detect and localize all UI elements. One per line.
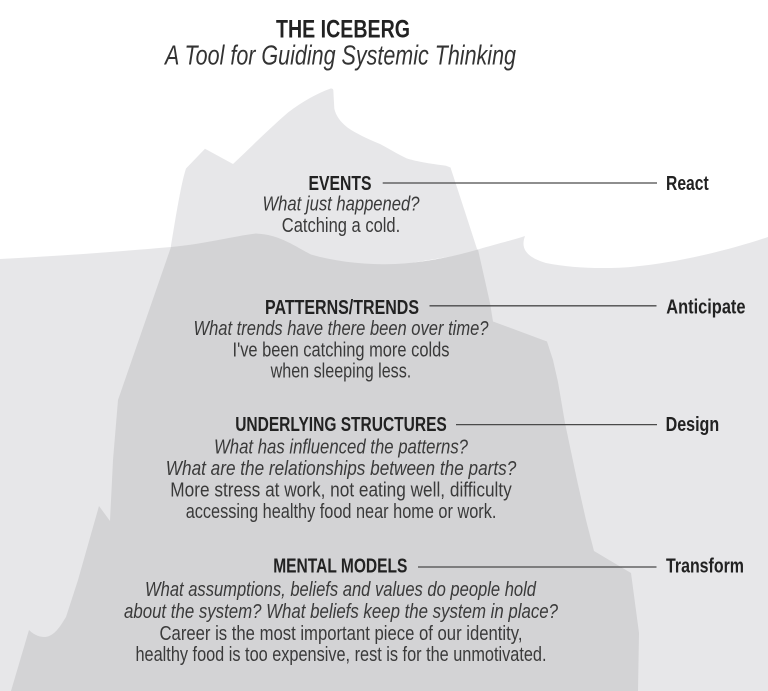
svg-text:Transform: Transform [666,556,744,578]
svg-text:Anticipate: Anticipate [666,296,745,318]
svg-text:EVENTS: EVENTS [309,173,372,195]
svg-text:I've been catching more colds: I've been catching more colds [233,340,450,362]
svg-text:accessing healthy food near ho: accessing healthy food near home or work… [186,501,497,523]
svg-text:Design: Design [666,414,720,436]
svg-text:What trends have there been ov: What trends have there been over time? [194,318,490,340]
svg-text:What has influenced the patter: What has influenced the patterns? [214,437,469,459]
svg-text:PATTERNS/TRENDS: PATTERNS/TRENDS [265,297,419,319]
svg-text:Catching a cold.: Catching a cold. [282,215,400,237]
svg-text:A Tool for Guiding Systemic Th: A Tool for Guiding Systemic Thinking [163,39,516,70]
svg-text:Career is the most important p: Career is the most important piece of ou… [160,623,523,645]
svg-text:UNDERLYING STRUCTURES: UNDERLYING STRUCTURES [235,414,447,436]
svg-text:MENTAL MODELS: MENTAL MODELS [273,556,407,578]
svg-text:What are the relationships bet: What are the relationships between the p… [166,458,517,480]
svg-text:when sleeping less.: when sleeping less. [270,361,412,383]
svg-text:React: React [666,173,709,195]
svg-text:What assumptions, beliefs and: What assumptions, beliefs and values do … [145,579,537,601]
svg-text:More stress at work, not eatin: More stress at work, not eating well, di… [170,479,512,501]
svg-text:about the system? What beliefs: about the system? What beliefs keep the … [124,601,559,623]
svg-text:healthy food is too expensive,: healthy food is too expensive, rest is f… [136,644,547,666]
svg-text:What just happened?: What just happened? [263,193,421,215]
